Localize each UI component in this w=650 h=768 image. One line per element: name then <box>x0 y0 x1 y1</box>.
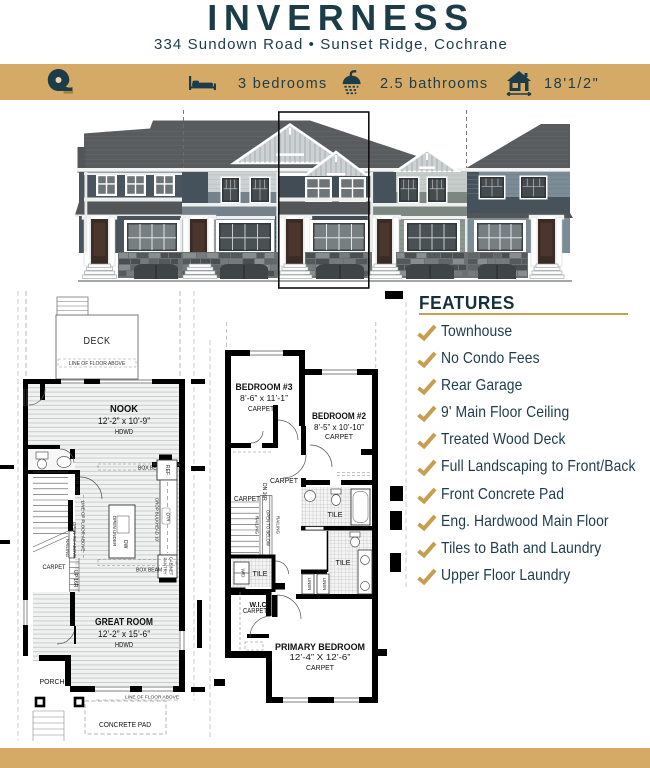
svg-text:CARPET: CARPET <box>306 665 335 672</box>
svg-text:LINEN: LINEN <box>307 578 312 591</box>
svg-text:12’-2” x 10’-9”: 12’-2” x 10’-9” <box>98 416 150 427</box>
svg-text:UP 16R: UP 16R <box>72 570 78 588</box>
svg-text:PANTRY: PANTRY <box>163 557 168 574</box>
svg-text:RAILING: RAILING <box>65 539 70 558</box>
svg-text:CARPET: CARPET <box>43 565 66 571</box>
svg-text:RAILING: RAILING <box>255 516 260 535</box>
svg-text:OTR: OTR <box>166 512 171 521</box>
svg-text:BEDROOM #3: BEDROOM #3 <box>236 382 293 393</box>
svg-text:OPEN UNDER: OPEN UNDER <box>112 516 117 547</box>
svg-text:8’-6” x 11’-1”: 8’-6” x 11’-1” <box>240 393 288 403</box>
svg-text:DW: DW <box>122 540 128 549</box>
svg-text:DROP BULKHEAD 10’: DROP BULKHEAD 10’ <box>155 498 160 542</box>
svg-text:DN 16R: DN 16R <box>261 483 267 501</box>
svg-text:HDWD: HDWD <box>115 427 133 436</box>
svg-text:DECK: DECK <box>84 336 111 347</box>
svg-text:LINEN: LINEN <box>322 578 327 591</box>
svg-text:CARPET: CARPET <box>325 434 354 441</box>
svg-text:NOOK: NOOK <box>110 403 138 415</box>
svg-text:BEDROOM #2: BEDROOM #2 <box>312 411 366 422</box>
svg-text:CARPET: CARPET <box>270 478 299 485</box>
svg-text:LINE OF FLOOR ABOVE: LINE OF FLOOR ABOVE <box>125 695 179 701</box>
svg-text:OPEN TO BELOW: OPEN TO BELOW <box>265 510 270 547</box>
svg-text:RAILING: RAILING <box>276 516 281 535</box>
svg-text:REF: REF <box>164 465 170 475</box>
svg-text:CARPET: CARPET <box>248 406 275 413</box>
svg-text:TILE: TILE <box>328 512 343 519</box>
svg-text:BOX BEAM: BOX BEAM <box>136 568 162 574</box>
svg-text:TILE: TILE <box>336 560 351 567</box>
svg-text:12’-2” x 15’-6”: 12’-2” x 15’-6” <box>98 629 150 640</box>
svg-text:HDWD: HDWD <box>115 640 133 649</box>
svg-text:PORCH: PORCH <box>40 677 65 686</box>
svg-text:LINE OF FLOOR ABOVE: LINE OF FLOOR ABOVE <box>69 361 126 367</box>
svg-text:8’-5” x 10’-10”: 8’-5” x 10’-10” <box>314 422 364 432</box>
svg-text:GREAT ROOM: GREAT ROOM <box>95 616 153 628</box>
svg-text:W/D: W/D <box>241 569 246 578</box>
svg-text:LINE OF FLOOR ABOVE: LINE OF FLOOR ABOVE <box>81 501 86 552</box>
svg-text:CARPET: CARPET <box>234 496 261 503</box>
svg-text:CONCRETE PAD: CONCRETE PAD <box>99 720 152 729</box>
svg-text:OPEN TO ABOVE: OPEN TO ABOVE <box>72 522 77 559</box>
svg-text:DN 14R: DN 14R <box>73 477 79 495</box>
svg-text:12’-4” X 12’-6”: 12’-4” X 12’-6” <box>290 652 351 662</box>
svg-text:TILE: TILE <box>253 571 268 578</box>
svg-text:CARPET: CARPET <box>243 608 268 615</box>
